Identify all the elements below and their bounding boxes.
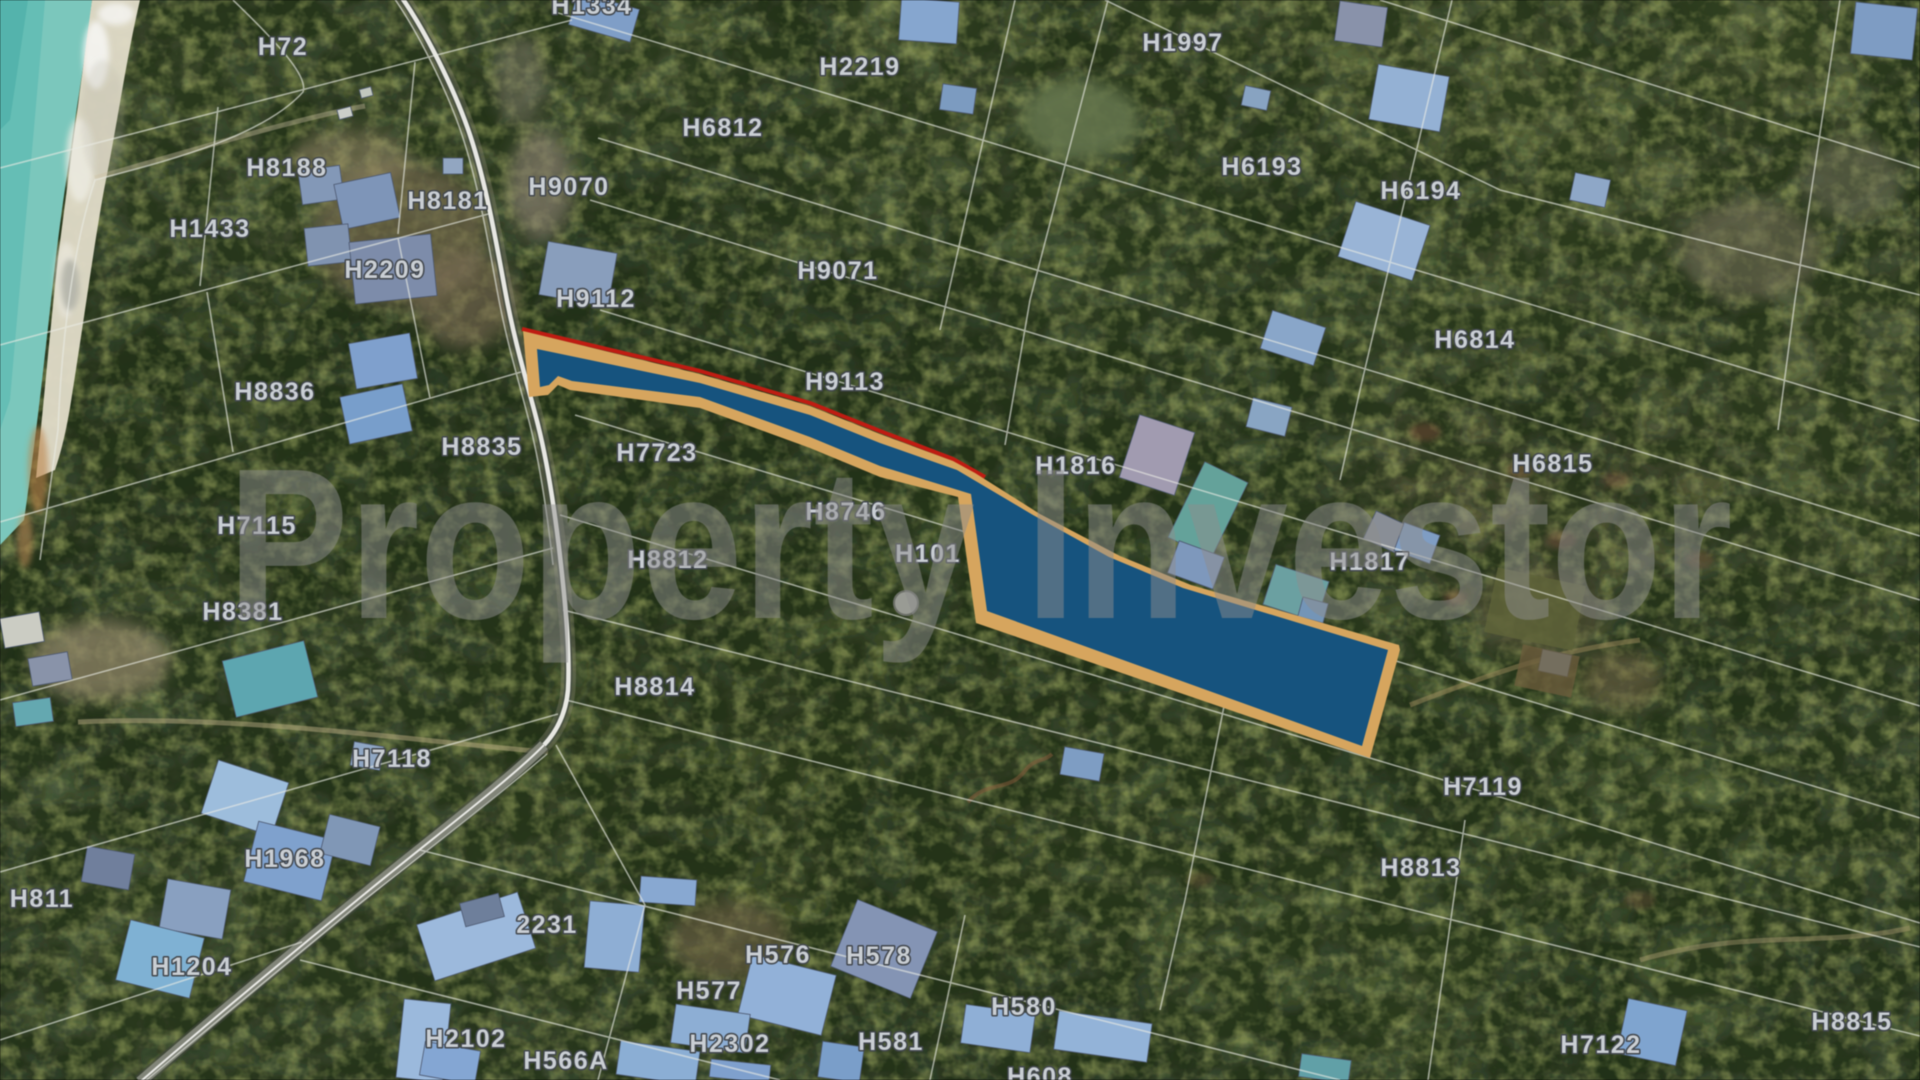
svg-text:H1997: H1997 bbox=[1142, 29, 1223, 57]
svg-text:H8814: H8814 bbox=[614, 673, 695, 701]
svg-text:H7118: H7118 bbox=[352, 745, 432, 773]
svg-text:Property Investor: Property Investor bbox=[228, 423, 1733, 664]
svg-text:H811: H811 bbox=[10, 885, 74, 913]
svg-text:H578: H578 bbox=[846, 942, 912, 970]
svg-text:H581: H581 bbox=[858, 1028, 924, 1056]
svg-text:H1204: H1204 bbox=[151, 953, 232, 981]
svg-text:H1433: H1433 bbox=[169, 215, 250, 243]
svg-text:H8181: H8181 bbox=[407, 187, 488, 215]
svg-text:H9113: H9113 bbox=[805, 368, 885, 396]
svg-text:H9071: H9071 bbox=[797, 257, 878, 285]
svg-text:H72: H72 bbox=[258, 33, 308, 61]
svg-text:H2302: H2302 bbox=[689, 1030, 770, 1058]
svg-text:H6193: H6193 bbox=[1221, 153, 1302, 181]
svg-text:H576: H576 bbox=[745, 941, 811, 969]
svg-text:H8815: H8815 bbox=[1811, 1008, 1892, 1036]
svg-text:H6194: H6194 bbox=[1380, 177, 1461, 205]
svg-text:H608: H608 bbox=[1007, 1063, 1073, 1080]
svg-text:H8836: H8836 bbox=[234, 378, 315, 406]
svg-text:H6812: H6812 bbox=[682, 114, 763, 142]
svg-text:H8188: H8188 bbox=[246, 154, 327, 182]
svg-text:H566A: H566A bbox=[523, 1047, 608, 1075]
svg-text:H9070: H9070 bbox=[528, 173, 609, 201]
svg-text:H1968: H1968 bbox=[244, 845, 325, 873]
svg-text:H1334: H1334 bbox=[551, 0, 632, 20]
svg-text:H2219: H2219 bbox=[819, 53, 900, 81]
svg-text:H580: H580 bbox=[991, 993, 1057, 1021]
svg-text:H9112: H9112 bbox=[556, 285, 636, 313]
svg-text:H2209: H2209 bbox=[344, 256, 425, 284]
svg-text:2231: 2231 bbox=[516, 911, 578, 939]
svg-text:H7119: H7119 bbox=[1443, 773, 1523, 801]
svg-text:H577: H577 bbox=[676, 977, 742, 1005]
svg-text:H6814: H6814 bbox=[1434, 326, 1515, 354]
svg-text:H8813: H8813 bbox=[1380, 854, 1461, 882]
svg-text:H7122: H7122 bbox=[1560, 1031, 1641, 1059]
svg-text:H2102: H2102 bbox=[425, 1025, 506, 1053]
